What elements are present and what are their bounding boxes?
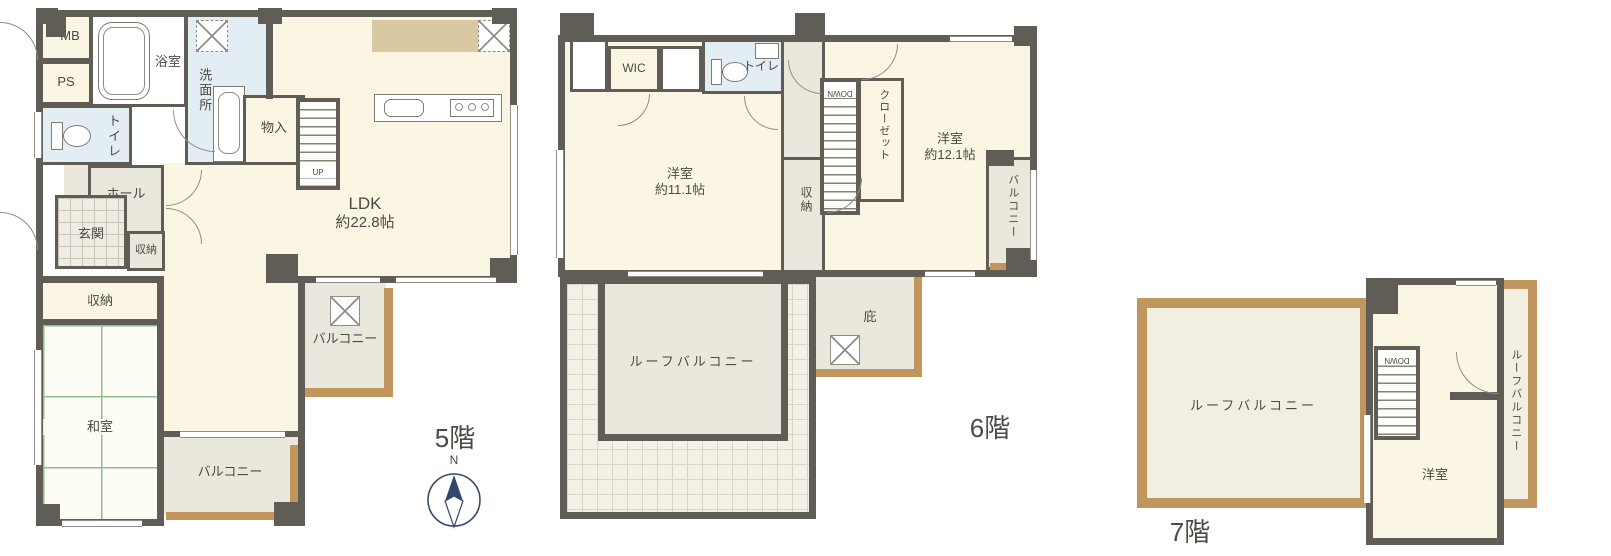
room-genkan: 玄関 [55, 195, 127, 269]
room-ldk-extension [160, 163, 306, 437]
roof-balcony-7f-side: ルーフバルコニー [1500, 280, 1537, 508]
roof-balcony-7f-main: ルーフバルコニー [1137, 298, 1370, 508]
hatch-box-icon [478, 20, 510, 52]
hisashi-tan-bottom [816, 369, 922, 377]
hisashi-label: 庇 [850, 308, 890, 326]
compass-north-label: N [450, 453, 459, 467]
kitchen-sink-icon [384, 99, 424, 117]
toilet-5f-label: トイレ [105, 114, 121, 159]
room-storage-6f: 収納 [781, 157, 825, 273]
pillar [986, 150, 1014, 166]
balcony-right-label: バルコニー [300, 330, 390, 348]
window [1456, 280, 1496, 286]
wall [36, 276, 164, 283]
wall [266, 13, 273, 99]
genkan-label: 玄関 [58, 226, 124, 242]
pillar [258, 8, 282, 24]
toilet-tank-icon [711, 59, 722, 85]
hall-6f [781, 36, 825, 160]
floor6-label: 6階 [950, 412, 1030, 444]
door-arc [0, 212, 38, 250]
floor5-label: 5階 [415, 422, 495, 454]
room-toilet-5f: トイレ [38, 105, 132, 165]
roof-balcony-7f-main-label: ルーフバルコニー [1147, 398, 1360, 414]
room-bath: 浴室 [90, 13, 187, 107]
floor7-label: 7階 [1150, 516, 1230, 548]
window [62, 520, 142, 527]
stairs-up: UP [296, 98, 340, 190]
washroom-label: 洗面所 [196, 68, 212, 113]
storage-band-label: 収納 [43, 293, 157, 309]
bed1-name: 洋室 [667, 166, 693, 182]
window [396, 277, 496, 283]
hatch-box-icon [196, 20, 228, 52]
bed2-name: 洋室 [937, 131, 963, 147]
room-storage-small: 収納 [127, 231, 165, 271]
pillar [274, 502, 302, 526]
storage-6f-label: 収納 [798, 186, 813, 214]
pillar [266, 254, 298, 283]
pillar [36, 504, 60, 526]
room-storage-band: 収納 [40, 280, 160, 322]
bed1-size: 約11.1帖 [655, 182, 705, 198]
stairs-down-7f: DOWN [1374, 346, 1420, 440]
ldk-size: 約22.8帖 [335, 214, 394, 233]
closet-box [570, 38, 608, 92]
room-toilet-6f: トイレ [702, 36, 784, 94]
roof-balcony-7f-side-label: ルーフバルコニー [1508, 349, 1522, 453]
closet-box [660, 46, 702, 92]
roof-balcony-6f-inner: ルーフバルコニー [598, 277, 788, 441]
door-arc [173, 110, 215, 152]
window [950, 36, 1012, 42]
ps-label: PS [43, 74, 89, 90]
window [34, 112, 42, 158]
stove-burner-icon [468, 103, 476, 111]
bathtub-inner-icon [103, 27, 145, 95]
window [925, 271, 975, 277]
bed1-label: 洋室 約11.1帖 [615, 160, 745, 204]
bed2-size: 約12.1帖 [924, 147, 975, 163]
window [180, 431, 285, 438]
pillar [1366, 278, 1398, 314]
toilet-tank-icon [51, 122, 63, 150]
floor-plan-canvas: バルコニー バルコニー MB PS 浴室 洗面所 トイレ 物入 UP ホール 玄… [0, 0, 1611, 556]
stairs-up-label: UP [300, 168, 336, 178]
monoire-label: 物入 [246, 120, 302, 136]
wall [157, 283, 164, 526]
ldk-name: LDK [348, 193, 381, 214]
window [34, 350, 42, 465]
roof-balcony-6f-label: ルーフバルコニー [605, 354, 781, 370]
compass: N [424, 452, 484, 534]
window [316, 277, 380, 283]
balcony-6f-label: バルコニー [1005, 174, 1019, 239]
pillar [492, 8, 517, 24]
kitchen-counter-top [372, 20, 494, 52]
pillar [1014, 26, 1037, 46]
ldk-label: LDK 約22.8帖 [300, 190, 430, 236]
pillar [795, 13, 825, 39]
window [1363, 415, 1371, 503]
storage-small-label: 収納 [130, 244, 162, 258]
balcony-bottom-label: バルコニー [180, 462, 280, 482]
bedroom-7f-label: 洋室 [1373, 467, 1497, 483]
toilet-bowl-icon [63, 125, 91, 147]
room-washitsu: 和室 [40, 322, 160, 526]
balcony-right-hatch-icon [330, 296, 360, 326]
window [1030, 170, 1037, 260]
room-ps: PS [40, 61, 92, 105]
stove-burner-icon [481, 103, 489, 111]
wic-label: WIC [611, 61, 657, 76]
stairs-down-7f-label: DOWN [1378, 355, 1416, 365]
stairs-down-6f-label: DOWN [824, 88, 856, 98]
stove-burner-icon [455, 103, 463, 111]
balcony-right-tan-bottom [302, 388, 393, 397]
window [628, 271, 763, 277]
basin-icon [755, 43, 779, 59]
hisashi-hatch-icon [830, 335, 860, 365]
room-wic: WIC [608, 46, 660, 92]
window [556, 150, 564, 258]
toilet-6f-label: トイレ [743, 59, 779, 74]
window [510, 105, 518, 255]
wall [298, 276, 305, 526]
door-arc [0, 22, 38, 60]
hisashi-tan-right [914, 277, 922, 377]
bath-label: 浴室 [155, 54, 181, 70]
washitsu-label: 和室 [43, 419, 157, 435]
compass-icon: N [424, 452, 484, 534]
pillar [560, 13, 594, 39]
vanity-basin-icon [218, 92, 240, 154]
pillar [36, 8, 58, 24]
